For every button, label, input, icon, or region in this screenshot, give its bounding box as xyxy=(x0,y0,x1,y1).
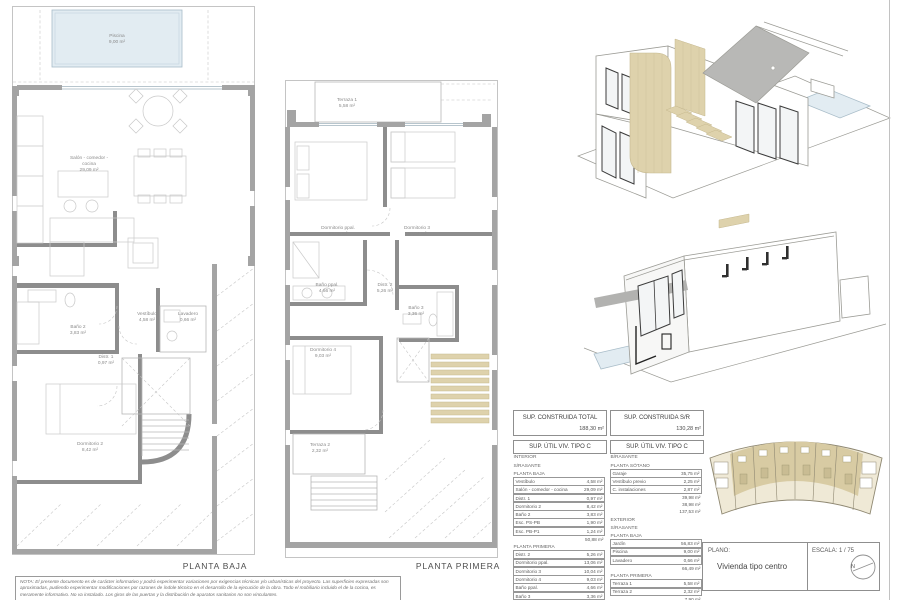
plano-label: PLANO: xyxy=(708,548,730,554)
titleblock-divider xyxy=(807,543,808,590)
group-heading: PLANTA BAJA xyxy=(514,472,606,477)
plan-title-primera: PLANTA PRIMERA xyxy=(393,561,523,571)
rows-exterior-baja: Jardín56,83 m²Piscina9,00 m²Lavadero0,66… xyxy=(610,540,702,572)
furniture xyxy=(17,89,187,434)
house-body xyxy=(594,214,870,374)
furniture xyxy=(293,132,455,430)
rows-planta-baja: Vestíbulo4,58 m²Salón - comedor - cocina… xyxy=(513,478,605,543)
north-label: N xyxy=(851,564,855,570)
site-band xyxy=(710,442,882,515)
table-construida-sr-header: SUP. CONSTRUIDA S/R xyxy=(610,410,704,425)
room-label-salon: Salón - comedor -cocina29,09 m² xyxy=(64,156,114,175)
table-row: Esc. PB-P11,24 m² xyxy=(513,527,605,536)
floorplan-planta-baja xyxy=(12,6,267,558)
group-heading: PLANTA SÓTANO xyxy=(611,464,703,469)
room-label-bano2: Baño 23,83 m² xyxy=(58,325,98,337)
table-util-right-header: SUP. ÚTIL VIV. TIPO C xyxy=(610,440,704,454)
room-label-dorm3: Dormitorio 310,04 m² xyxy=(390,226,444,238)
group-heading: PLANTA PRIMERA xyxy=(514,545,606,550)
table-row: 39,98 m² xyxy=(610,494,702,501)
table-construida-total-value: 188,30 m² xyxy=(513,424,607,436)
room-label-dorm4: Dormitorio 49,03 m² xyxy=(294,348,352,360)
yard-hatch xyxy=(17,268,254,546)
plano-value: Vivienda tipo centro xyxy=(717,562,787,571)
room-label-distr2: Distr. 25,26 m² xyxy=(366,283,404,295)
table-util-left: INTERIOR S/RASANTE PLANTA BAJA Vestíbulo… xyxy=(513,453,605,600)
section-heading: B/RASANTE xyxy=(611,455,703,460)
table-construida-total-header: SUP. CONSTRUIDA TOTAL xyxy=(513,410,607,425)
section-heading: INTERIOR xyxy=(514,455,606,460)
section-heading: S/RASANTE xyxy=(611,526,703,531)
table-row: 38,98 m² xyxy=(610,501,702,508)
table-util-left-header: SUP. ÚTIL VIV. TIPO C xyxy=(513,440,607,454)
floorplan-planta-primera xyxy=(285,80,510,558)
rows-planta-sotano: Garaje35,75 m²Vestíbulo previo2,25 m²C. … xyxy=(610,469,702,515)
yard-hatch xyxy=(385,440,491,538)
rows-exterior-primera: Terraza 15,58 m²Terraza 22,32 m²7,90 m²7… xyxy=(610,580,702,600)
room-label-piscina: Piscina9,00 m² xyxy=(92,34,142,46)
table-row: Lavadero0,66 m² xyxy=(610,556,702,565)
section-heading: EXTERIOR xyxy=(611,518,703,523)
site-plan-minimap xyxy=(700,416,890,528)
room-label-banoppal: Baño ppal.4,66 m² xyxy=(304,283,350,295)
room-label-terraza1: Terraza 15,58 m² xyxy=(323,98,371,110)
room-label-vestibulo: Vestíbulo4,58 m² xyxy=(126,312,168,324)
table-row: C. instalaciones2,87 m² xyxy=(610,485,702,494)
plan-sheet: Piscina9,00 m² Salón - comedor -cocina29… xyxy=(0,0,900,600)
room-label-dormppal: Dormitorio ppal.13,06 m² xyxy=(305,226,371,238)
table-construida-sr-value: 130,28 m² xyxy=(610,424,704,436)
room-label-dorm2: Dormitorio 28,42 m² xyxy=(60,442,120,454)
render-axonometric-rear xyxy=(576,206,898,402)
render-axonometric-front xyxy=(558,6,898,208)
room-label-bano3: Baño 33,36 m² xyxy=(399,306,433,318)
room-label-terraza2: Terraza 22,32 m² xyxy=(297,443,343,455)
room-label-lavadero: Lavadero0,66 m² xyxy=(168,312,208,324)
table-util-right: B/RASANTE PLANTA SÓTANO Garaje35,75 m²Ve… xyxy=(610,453,702,600)
plan-title-baja: PLANTA BAJA xyxy=(155,561,275,571)
table-row: 7,90 m² xyxy=(610,596,702,600)
group-heading: PLANTA BAJA xyxy=(611,534,703,539)
table-row: 50,88 m² xyxy=(513,536,605,543)
title-block: PLANO: Vivienda tipo centro ESCALA: 1 / … xyxy=(702,542,880,591)
sheet-edge-line xyxy=(889,0,890,600)
rows-planta-primera: Distr. 25,26 m²Dormitorio ppal.13,06 m²D… xyxy=(513,551,605,600)
section-heading: S/RASANTE xyxy=(514,464,606,469)
table-row: 66,49 m² xyxy=(610,565,702,572)
stairs xyxy=(122,358,190,456)
room-label-distr1: Distr. 10,97 m² xyxy=(86,355,126,367)
disclaimer-note: NOTA: El presente documento es de caráct… xyxy=(15,576,401,600)
table-row: 137,53 m² xyxy=(610,508,702,515)
stairs xyxy=(311,338,489,510)
table-row: Baño 33,36 m² xyxy=(513,592,605,600)
table-row: Terraza 22,32 m² xyxy=(610,588,702,597)
group-heading: PLANTA PRIMERA xyxy=(611,574,703,579)
plot-boundary xyxy=(286,81,498,558)
